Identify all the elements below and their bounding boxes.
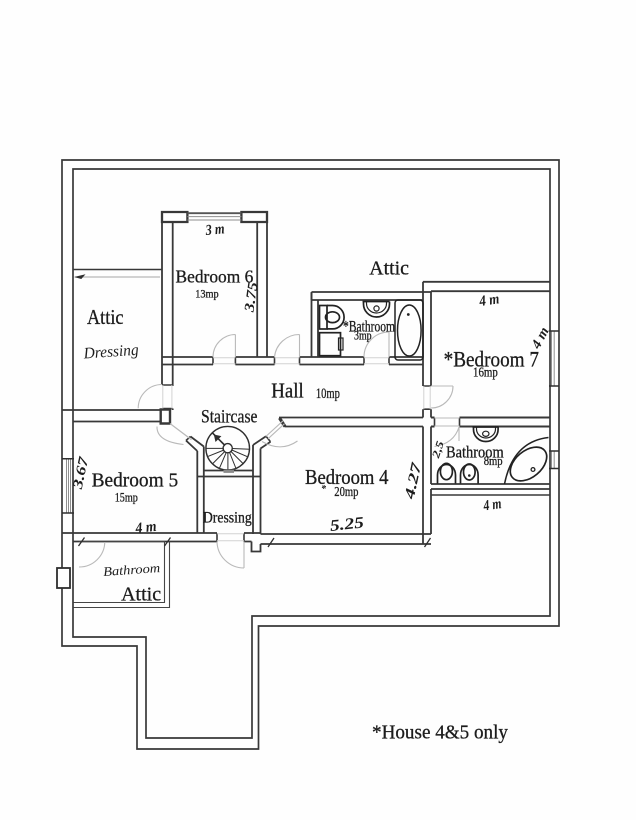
svg-text:4 m: 4 m bbox=[477, 291, 500, 310]
svg-text:4 m: 4 m bbox=[134, 519, 157, 537]
svg-text:8mp: 8mp bbox=[484, 454, 503, 468]
svg-text:3mp: 3mp bbox=[354, 329, 372, 343]
svg-text:13mp: 13mp bbox=[195, 287, 219, 301]
svg-text:Hall: Hall bbox=[271, 379, 304, 403]
svg-text:4.27: 4.27 bbox=[402, 461, 426, 502]
svg-text:Dressing: Dressing bbox=[82, 342, 139, 363]
svg-text:15mp: 15mp bbox=[115, 491, 138, 505]
svg-text:3 m: 3 m bbox=[204, 221, 225, 239]
svg-text:Attic: Attic bbox=[369, 258, 409, 280]
svg-text:Bedroom 5: Bedroom 5 bbox=[92, 470, 179, 492]
svg-text:3.75: 3.75 bbox=[242, 281, 261, 314]
svg-text:5.25: 5.25 bbox=[329, 514, 365, 534]
svg-text:*House 4&5 only: *House 4&5 only bbox=[372, 722, 508, 744]
svg-text:Bathroom: Bathroom bbox=[103, 560, 161, 579]
svg-text:Attic: Attic bbox=[121, 584, 161, 606]
svg-text:Dressing: Dressing bbox=[203, 510, 252, 527]
svg-text:2,5: 2,5 bbox=[430, 439, 447, 461]
svg-text:16mp: 16mp bbox=[473, 365, 498, 380]
svg-text:Bedroom 6: Bedroom 6 bbox=[176, 267, 254, 287]
svg-text:Attic: Attic bbox=[87, 305, 124, 329]
svg-text:20mp: 20mp bbox=[334, 484, 358, 499]
svg-text:Staircase: Staircase bbox=[201, 408, 258, 428]
svg-text:10mp: 10mp bbox=[316, 386, 340, 402]
svg-text:4 m: 4 m bbox=[482, 496, 503, 514]
